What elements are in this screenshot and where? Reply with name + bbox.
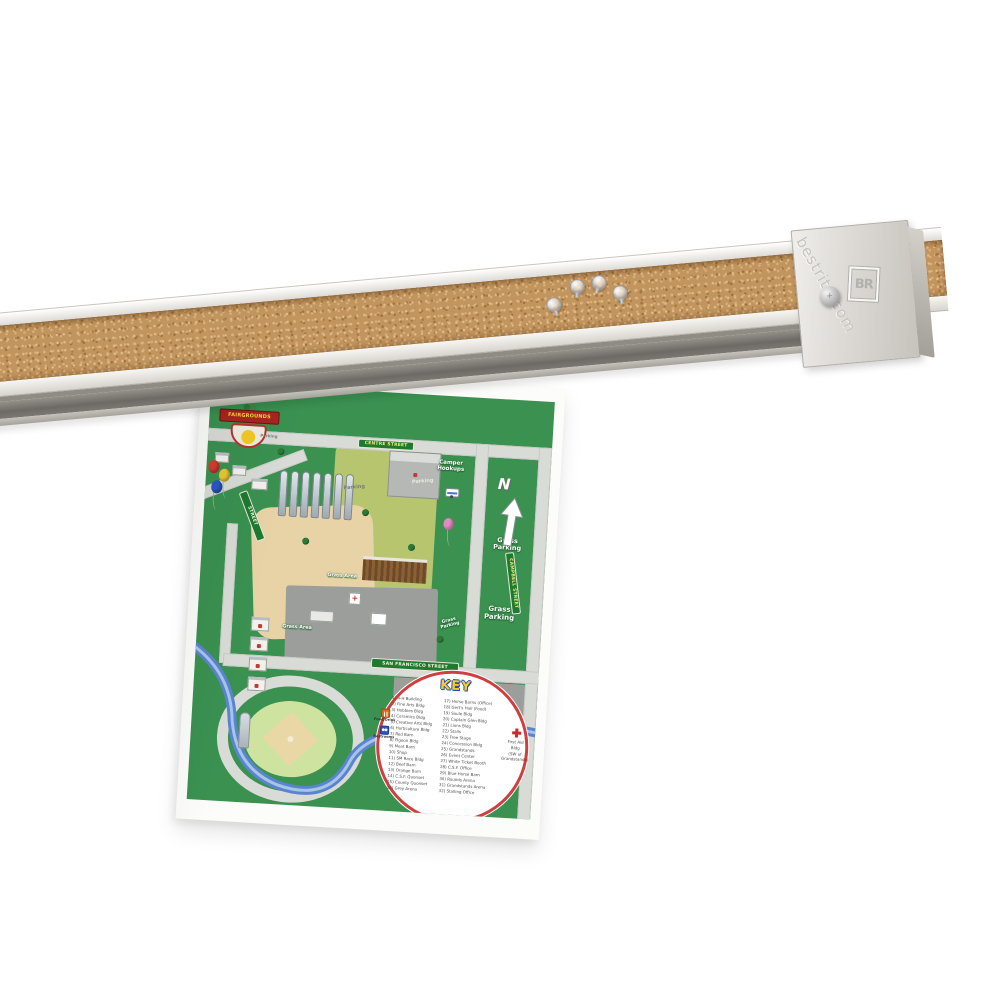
stall-building [344,474,355,520]
building-number-marker [258,624,262,628]
first-aid-note: First AidBldg(SW ofGrandstands) [498,728,530,800]
stall-building [333,473,344,519]
paper-map: + FAIRGROUNDS [176,367,566,840]
map-building [247,676,266,691]
building-number-marker [254,684,258,688]
stall-building [322,473,333,519]
building-number-marker [256,664,260,668]
sun-icon [241,430,256,445]
map-building [251,478,268,490]
first-aid-cross-icon [511,728,521,738]
end-cap: bestrite.com BR + [791,220,921,368]
long-silver-building [238,712,251,749]
quonset-stall-row [278,470,367,523]
map-building [250,637,269,652]
push-pin[interactable] [590,273,608,291]
first-aid-note-line: Grandstands) [500,756,528,763]
building-number-marker [257,644,261,648]
key-columns: 1) 4-H Building2) Fine Arts Bldg3) Hobbi… [387,695,532,799]
brand-logo-stamp: BR [848,266,880,301]
map-building [248,656,267,671]
camper-icon [445,488,460,498]
key-legend-circle: KEY 1) 4-H Building2) Fine Arts Bldg3) H… [372,666,533,819]
concession-building [309,610,334,622]
map-building [232,465,247,476]
restrooms-icon [379,725,389,735]
pictogram-legend: Food/Drink Restrooms [371,708,399,740]
food-drink-label: Food/Drink [372,717,398,723]
first-aid-note-lines: First AidBldg(SW ofGrandstands) [500,739,529,764]
stall-building [278,470,289,516]
camper-hookups-label: Camper Hookups [431,459,472,474]
event-center-building [387,450,442,499]
food-drink-icon [380,708,390,718]
first-aid-building: + [349,592,362,605]
key-column-2: 17) Horse Barns (Office)18) Gert's Hall … [438,698,502,797]
stall-building [300,471,311,517]
push-pin[interactable] [569,279,585,295]
push-pin[interactable] [611,284,628,301]
stall-building [289,471,300,517]
push-pin[interactable] [544,295,563,314]
small-building [370,613,387,626]
building-number-marker [413,473,417,477]
fairgrounds-map: + FAIRGROUNDS [187,382,555,820]
product-photo: + FAIRGROUNDS [0,0,1000,1000]
map-building [251,617,270,632]
north-label: N [497,475,511,494]
parking-label-1: Parking [260,433,278,439]
stall-building [311,472,322,518]
brand-text: bestrite.com [792,234,881,374]
grandstand [362,556,427,584]
